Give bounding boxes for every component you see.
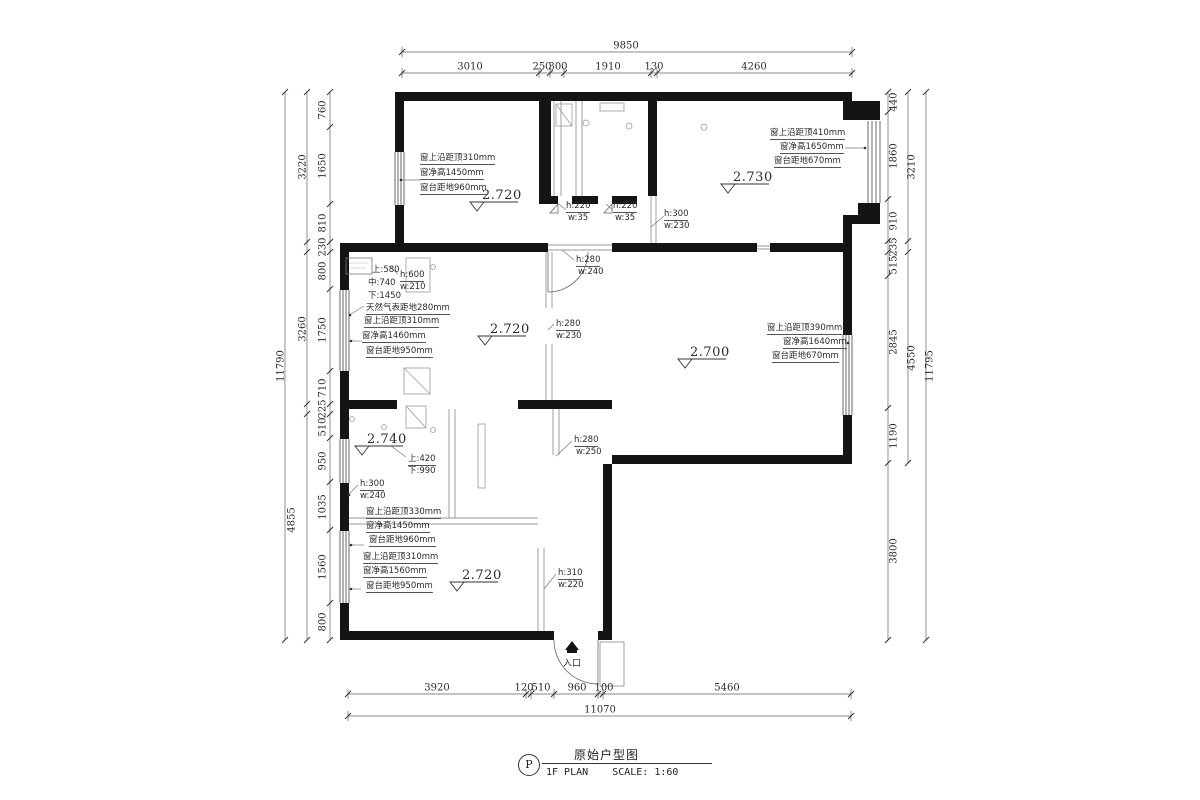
dimension-label: 710 (318, 378, 329, 397)
dimension-label: 225 (318, 399, 329, 418)
level-marker-label: 2.720 (490, 322, 530, 337)
annotation-label: w:240 (578, 267, 604, 277)
dimension-label: 800 (318, 612, 329, 631)
labels-layer: 9850301025030019101304260392012051096010… (0, 0, 1200, 800)
annotation-label: 窗台距地950mm (366, 579, 433, 593)
annotation-label: h:310 (558, 568, 582, 580)
annotation-label: 窗净高1450mm (366, 519, 430, 533)
annotation-label: 上:580 (372, 263, 400, 275)
dimension-label: 4550 (907, 345, 918, 370)
dimension-label: 11070 (584, 705, 616, 716)
annotation-label: 窗台距地670mm (774, 154, 841, 168)
dimension-label: 3260 (298, 316, 309, 341)
annotation-label: w:35 (568, 213, 588, 223)
annotation-label: h:280 (574, 435, 598, 447)
dimension-label: 9850 (613, 41, 638, 52)
level-marker-label: 2.720 (462, 568, 502, 583)
annotation-label: 窗上沿距顶390mm (767, 321, 842, 335)
dimension-label: 1750 (318, 317, 329, 342)
annotation-label: h:280 (576, 255, 600, 267)
dimension-label: 1190 (889, 423, 900, 448)
level-marker-label: 2.730 (733, 170, 773, 185)
dimension-label: 1035 (318, 494, 329, 519)
annotation-label: 下:1450 (368, 289, 401, 301)
annotation-label: 窗净高1460mm (362, 329, 426, 343)
title-subtitle: 1F PLAN SCALE: 1:60 (546, 767, 696, 778)
dimension-label: 760 (318, 100, 329, 119)
annotation-label: 窗台距地670mm (772, 349, 839, 363)
annotation-label: w:210 (400, 282, 426, 292)
annotation-label: w:230 (556, 331, 582, 341)
dimension-label: 11790 (276, 350, 287, 382)
annotation-label: 窗台距地950mm (366, 344, 433, 358)
dimension-label: 1560 (318, 554, 329, 579)
annotation-label: h:280 (556, 319, 580, 331)
annotation-label: h:300 (360, 479, 384, 491)
dimension-label: 11795 (925, 350, 936, 382)
annotation-label: h:300 (664, 209, 688, 221)
dimension-label: 810 (318, 213, 329, 232)
level-marker-label: 2.720 (482, 188, 522, 203)
annotation-label: 下:990 (408, 464, 436, 476)
annotation-label: w:35 (615, 213, 635, 223)
dimension-label: 1650 (318, 153, 329, 178)
title-divider (542, 763, 712, 764)
dimension-label: 3220 (298, 154, 309, 179)
dimension-label: 1910 (595, 62, 620, 73)
dimension-label: 950 (318, 451, 329, 470)
annotation-label: w:240 (360, 491, 386, 501)
annotation-label: 天然气表距地280mm (366, 301, 450, 315)
annotation-label: w:250 (576, 447, 602, 457)
dimension-label: 2845 (889, 329, 900, 354)
dimension-label: 3010 (457, 62, 482, 73)
dimension-label: 960 (567, 683, 586, 694)
annotation-label: h:220 (566, 201, 590, 213)
entry-label: 入口 (563, 656, 581, 669)
annotation-label: h:600 (400, 270, 424, 282)
annotation-label: 窗上沿距顶410mm (770, 126, 845, 140)
annotation-label: 窗净高1640mm (783, 335, 847, 349)
floor-plan-canvas: 9850301025030019101304260392012051096010… (0, 0, 1200, 800)
level-marker-label: 2.700 (690, 345, 730, 360)
annotation-label: w:220 (558, 580, 584, 590)
title-block: P 原始户型图 1F PLAN SCALE: 1:60 (518, 746, 738, 786)
annotation-label: 窗上沿距顶310mm (363, 550, 438, 564)
dimension-label: 3210 (907, 154, 918, 179)
dimension-label: 5460 (714, 683, 739, 694)
annotation-label: 窗上沿距顶310mm (420, 151, 495, 165)
annotation-label: 窗净高1450mm (420, 166, 484, 180)
title-marker-circle: P (518, 754, 540, 776)
dimension-label: 515 (889, 255, 900, 274)
plan-label: 1F PLAN (546, 767, 588, 778)
annotation-label: 窗上沿距顶310mm (364, 314, 439, 328)
dimension-label: 130 (644, 62, 663, 73)
annotation-label: 窗上沿距顶330mm (366, 505, 441, 519)
dimension-label: 1860 (889, 143, 900, 168)
scale-label: SCALE: 1:60 (612, 767, 678, 778)
annotation-label: 中:740 (368, 276, 396, 288)
annotation-label: h:220 (613, 201, 637, 213)
level-marker-label: 2.740 (367, 432, 407, 447)
drawing-title: 原始户型图 (574, 746, 639, 763)
dimension-label: 230 (318, 237, 329, 256)
dimension-label: 235 (889, 237, 900, 256)
dimension-label: 3920 (424, 683, 449, 694)
dimension-label: 800 (318, 261, 329, 280)
annotation-label: 窗净高1560mm (363, 564, 427, 578)
dimension-label: 440 (889, 92, 900, 111)
dimension-label: 100 (594, 683, 613, 694)
dimension-label: 510 (318, 417, 329, 436)
annotation-label: 窗台距地960mm (369, 533, 436, 547)
dimension-label: 3800 (889, 538, 900, 563)
dimension-label: 300 (548, 62, 567, 73)
dimension-label: 910 (889, 211, 900, 230)
dimension-label: 4260 (741, 62, 766, 73)
annotation-label: w:230 (664, 221, 690, 231)
dimension-label: 510 (531, 683, 550, 694)
dimension-label: 4855 (287, 507, 298, 532)
annotation-label: 窗净高1650mm (780, 140, 844, 154)
annotation-label: 窗台距地960mm (420, 181, 487, 195)
